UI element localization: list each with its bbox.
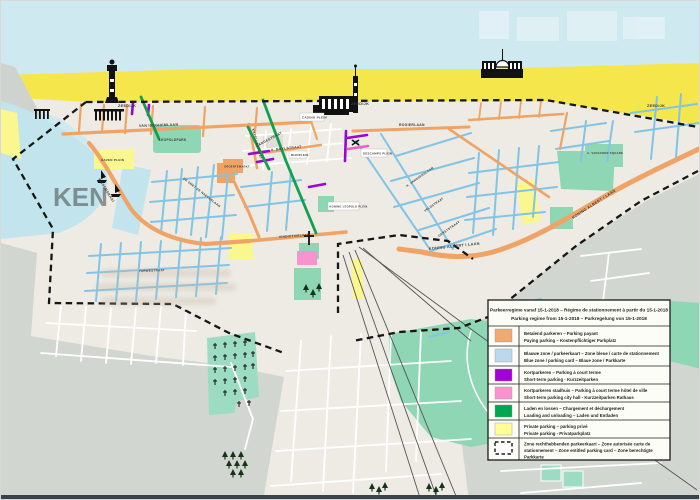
svg-text:Paying parking – Kostenpflicht: Paying parking – Kostenpflichtiger Parkp… bbox=[524, 338, 617, 343]
svg-text:Zone rechthebbenden parkeerkaa: Zone rechthebbenden parkeerkaart – Zone … bbox=[524, 442, 651, 447]
koning-leopold-plein-label: KONING LEOPOLD PLEIN bbox=[330, 205, 368, 209]
zeedijk-label-west: ZEEDIJK bbox=[118, 104, 136, 108]
legend-swatch-blue-zone bbox=[495, 349, 512, 362]
legend-swatch-paying bbox=[495, 329, 512, 342]
parking-zones-map-image: KEN ZEEDIJK ZEEDIJK ZEEDIJK VAN ISEGHEML… bbox=[0, 0, 700, 500]
svg-text:Short-term parking city hall -: Short-term parking city hall - Kurzzeitp… bbox=[524, 395, 634, 400]
leopoldpark-label: LEOPOLDPARK bbox=[159, 138, 187, 142]
map-canvas: KEN ZEEDIJK ZEEDIJK ZEEDIJK VAN ISEGHEML… bbox=[1, 1, 700, 500]
svg-text:Short-term parking - Kurzzeitp: Short-term parking - Kurzzeitparken bbox=[524, 377, 598, 382]
svg-text:Loading and unloading – Laden: Loading and unloading – Laden und Entlad… bbox=[524, 413, 618, 418]
legend-title-line1: Parkeerregime vanaf 15-1-2018 – Régime d… bbox=[490, 308, 668, 313]
photo-bottom-edge bbox=[1, 495, 700, 500]
legend: Parkeerregime vanaf 15-1-2018 – Régime d… bbox=[488, 300, 670, 460]
station-yellow-strip bbox=[351, 259, 364, 300]
svg-text:Betalend parkeren – Parking pa: Betalend parkeren – Parking payant bbox=[524, 331, 598, 336]
zeedijk-label-center: ZEEDIJK bbox=[351, 102, 369, 106]
park-right-of-legend bbox=[669, 301, 700, 369]
watermark-text: KEN bbox=[53, 182, 108, 212]
svg-text:Private parking - Privatparkpl: Private parking - Privatparkplatz bbox=[524, 431, 591, 436]
legend-swatch-loading bbox=[495, 405, 512, 417]
svg-text:Laden en lossen – Chargement e: Laden en lossen – Chargement et décharge… bbox=[524, 406, 625, 411]
legend-swatch-entitled-zone bbox=[495, 442, 512, 454]
descamps-plein-label: DESCAMPS PLEIN bbox=[363, 152, 392, 156]
a-vanacker-square-label: A. VANACKER SQUARE bbox=[587, 151, 623, 155]
groentemarkt-label: GROENTEMARKT bbox=[224, 165, 250, 169]
legend-title-line2: Parking regime from 15-1-2018 – Parkrege… bbox=[511, 316, 647, 321]
mijnplein-label: MIJNPLEIN bbox=[291, 153, 309, 157]
watermark-smudge bbox=[96, 269, 236, 305]
svg-text:Blue zone / parking card – Bla: Blue zone / parking card – Blaue zone / … bbox=[524, 358, 626, 363]
casino-plein-label: CASINO PLEIN bbox=[302, 116, 327, 120]
legend-swatch-short-term bbox=[495, 369, 512, 381]
haven-plein-label: HAVEN PLEIN bbox=[101, 158, 124, 162]
svg-text:Private parking – parking priv: Private parking – parking privé bbox=[524, 424, 588, 429]
rogierlaan-label: ROGIERLAAN bbox=[399, 123, 425, 127]
legend-swatch-city-hall bbox=[495, 387, 512, 399]
svg-text:Kortparkeren stadhuis – Parkin: Kortparkeren stadhuis – Parking à court … bbox=[524, 388, 648, 393]
svg-text:Kortparkeren – Parking à court: Kortparkeren – Parking à court terme bbox=[524, 370, 601, 375]
svg-text:stationnement – Zone entitled: stationnement – Zone entitled parking ca… bbox=[524, 448, 653, 453]
city-hall-pink-block bbox=[297, 251, 317, 265]
center-yellow-block bbox=[229, 233, 253, 259]
svg-text:Blauwe zone / parkeerkaart – Z: Blauwe zone / parkeerkaart – Zone bleue … bbox=[524, 351, 659, 356]
svg-text:Parkkarte: Parkkarte bbox=[524, 455, 544, 460]
zeedijk-label-east: ZEEDIJK bbox=[647, 104, 665, 108]
legend-swatch-private bbox=[495, 423, 512, 435]
park-church-block-b bbox=[294, 268, 321, 300]
outside-zone-west-strip bbox=[1, 243, 37, 336]
park-east-a bbox=[557, 151, 615, 191]
